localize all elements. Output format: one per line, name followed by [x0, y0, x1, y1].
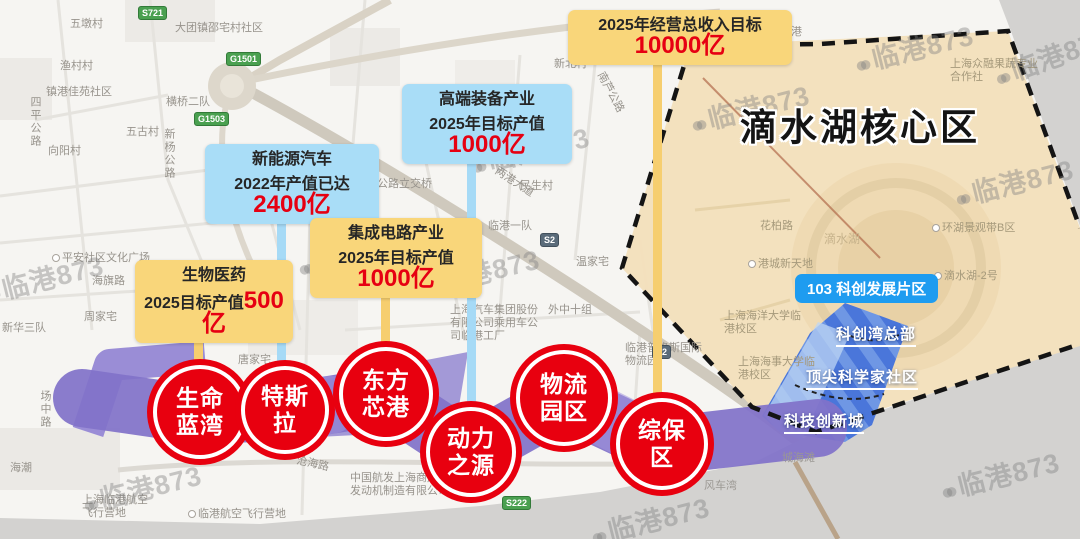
map-label: 临港一队 — [488, 220, 532, 233]
park-label: 东方芯港 — [362, 367, 410, 421]
callout-new-energy-vehicle: 新能源汽车 2022年产值已达2400亿 — [205, 144, 379, 224]
map-label: 上海汽车集团股份有限公司乘用车公司临港工厂 — [450, 304, 546, 343]
park-label: 生命蓝湾 — [176, 385, 224, 439]
park-label: 综保区 — [638, 417, 686, 471]
callout-title: 高端装备产业 — [410, 90, 564, 110]
map-label: 滴水湖 — [824, 233, 860, 246]
callout-prefix: 2025目标产值 — [144, 295, 244, 312]
map-label: 城海滩 — [782, 452, 815, 465]
map-label: 镇港佳苑社区 — [46, 86, 112, 99]
callout-title: 新能源汽车 — [213, 150, 371, 170]
wechat-bubbles-icon: ●● — [588, 524, 602, 539]
park-label: 物流园区 — [540, 371, 588, 425]
map-label: 环湖景观带B区 — [932, 222, 1015, 235]
map-label: 风车湾 — [704, 480, 737, 493]
park-node-5[interactable]: 物流园区 — [510, 344, 618, 452]
core-area-title: 滴水湖核心区 — [740, 97, 980, 151]
map-label: 四平公路 — [28, 96, 41, 148]
map-label: 海潮 — [10, 462, 32, 475]
map-label: 大团镇邵宅村社区 — [175, 22, 263, 35]
map-label: 滴水湖-2号 — [934, 270, 998, 283]
callout-title: 生物医药 — [143, 266, 285, 286]
district-103-badge: 103 科创发展片区 — [795, 274, 938, 303]
map-label: 新杨公路 — [162, 128, 175, 180]
map-label: 周家宅 — [84, 311, 117, 324]
map-label: 花柏路 — [760, 220, 793, 233]
callout-biomedicine: 生物医药 2025目标产值500亿 — [135, 260, 293, 343]
callout-value: 10000亿 — [635, 32, 726, 59]
map-label: 五古村 — [126, 126, 159, 139]
callout-integrated-circuit: 集成电路产业 2025年目标产值1000亿 — [310, 218, 482, 298]
road-number-badge: G1503 — [194, 112, 229, 126]
subzone-top-scientists: 顶尖科学家社区 — [806, 366, 918, 390]
road-number-badge: S2 — [540, 233, 559, 247]
road-number-badge: S721 — [138, 6, 167, 20]
park-node-4[interactable]: 动力之源 — [420, 401, 522, 503]
map-label: 向阳村 — [48, 145, 81, 158]
map-label: 港城新天地 — [748, 258, 813, 271]
callout-value: 1000亿 — [357, 265, 434, 292]
map-label: 新华三队 — [2, 322, 46, 335]
callout-title: 集成电路产业 — [318, 224, 474, 244]
callout-revenue-target: 2025年经营总收入目标10000亿 — [568, 10, 792, 65]
park-node-2[interactable]: 特斯拉 — [235, 360, 335, 460]
map-label: 横桥二队 — [166, 96, 210, 109]
map-label: 温家宅 — [576, 256, 609, 269]
park-label: 动力之源 — [447, 425, 495, 479]
poi-pin-icon — [748, 260, 756, 268]
connector-revenue-target — [653, 38, 662, 432]
callout-high-end-equipment: 高端装备产业 2025年目标产值1000亿 — [402, 84, 572, 164]
park-label: 特斯拉 — [261, 383, 309, 437]
map-label: 外中十组 — [548, 304, 592, 317]
poi-pin-icon — [188, 510, 196, 518]
park-node-6[interactable]: 综保区 — [610, 392, 714, 496]
subzone-tech-innovation-city: 科技创新城 — [784, 410, 864, 434]
road-number-badge: S222 — [502, 496, 531, 510]
map-label: 场中路 — [38, 390, 51, 429]
map-label: 五墩村 — [70, 18, 103, 31]
map-label: 渔村村 — [60, 60, 93, 73]
callout-value: 1000亿 — [448, 131, 525, 158]
subzone-kechuangwan: 科创湾总部 — [836, 323, 916, 347]
road-number-badge: G1501 — [226, 52, 261, 66]
callout-value: 2400亿 — [253, 191, 330, 218]
lingang-industry-map[interactable]: 五墩村大团镇邵宅村社区渔村村镇港佳苑社区横桥二队五古村向阳村四平公路新杨公路平安… — [0, 0, 1080, 539]
map-label: 上海海洋大学临港校区 — [724, 310, 808, 336]
poi-pin-icon — [932, 224, 940, 232]
map-label: 临港航空飞行营地 — [188, 508, 286, 521]
